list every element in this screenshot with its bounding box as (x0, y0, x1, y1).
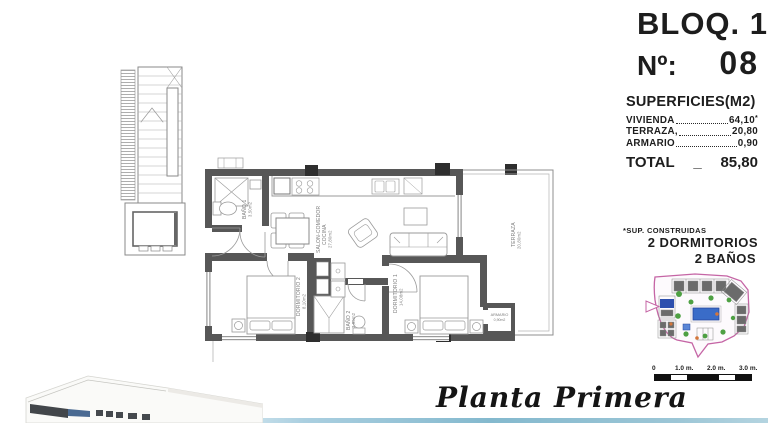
bathrooms-count: 2 BAÑOS (626, 251, 756, 266)
unit-number-row: Nº: 08 (637, 45, 759, 82)
armario-closet: ARMARIO 0,90m2 (483, 303, 515, 335)
row-name: ARMARIO (626, 138, 675, 149)
dormitorio2-furniture (232, 276, 295, 334)
banio2-area: 3,95m2 (351, 312, 356, 328)
scale-label-3: 3.0 m. (739, 365, 757, 372)
leader-dots (676, 146, 737, 147)
salon-area: 27,80m2 (328, 230, 333, 248)
unit-number-label: Nº: (637, 50, 677, 82)
total-label: TOTAL (626, 154, 675, 171)
floor-title: Planta Primera (436, 381, 670, 414)
building-render (18, 358, 263, 423)
row-value: 64,10 (729, 115, 755, 126)
dining-table (271, 213, 309, 248)
banio1-fixtures (213, 178, 261, 215)
row-note: * (755, 115, 758, 123)
small-pool (683, 324, 690, 330)
row-value: 0,90 (738, 138, 758, 149)
highlighted-unit (660, 299, 674, 308)
scale-label-0: 0 (652, 365, 656, 372)
scale-bar-segments (654, 374, 752, 381)
scale-label-2: 2.0 m. (707, 365, 725, 372)
table-row: VIVIENDA 64,10 * (626, 115, 758, 126)
surfaces-title: SUPERFICIES(M2) (626, 94, 758, 110)
total-value: 85,80 (720, 154, 758, 171)
unit-number-value: 08 (719, 45, 759, 82)
living-furniture (347, 208, 447, 256)
table-row: TERRAZA, 20,80 (626, 126, 758, 137)
banio1-area: 3,50m2 (248, 201, 253, 217)
dormitorio1-area: 14,08m2 (399, 288, 404, 306)
kitchen (218, 158, 455, 196)
table-row: ARMARIO 0,90 (626, 138, 758, 149)
row-value: 20,80 (732, 126, 758, 137)
total-row: TOTAL _ 85,80 (626, 154, 758, 171)
dormitorio2-area: 8,10m2 (302, 293, 307, 309)
surfaces-table: SUPERFICIES(M2) VIVIENDA 64,10 * TERRAZA… (626, 94, 758, 171)
block-title: BLOQ. 1 (637, 6, 759, 42)
site-plan-map (645, 272, 760, 365)
armario-area: 0,90m2 (494, 318, 506, 322)
bedrooms-count: 2 DORMITORIOS (626, 235, 758, 250)
pool (693, 308, 719, 320)
leader-dots (676, 123, 728, 124)
terraza-area: 20,80m2 (517, 231, 522, 249)
elevator (125, 203, 185, 255)
built-in-wardrobe (314, 258, 331, 296)
hatched-wall (121, 70, 135, 200)
constructed-footnote: *SUP. CONSTRUIDAS (623, 226, 706, 235)
row-name: VIVIENDA (626, 115, 675, 126)
row-name: TERRAZA, (626, 126, 678, 137)
dormitorio1-furniture (405, 276, 483, 334)
total-separator: _ (693, 154, 701, 171)
leader-dots (679, 135, 731, 136)
stair-core (121, 67, 185, 255)
stair-railing (167, 88, 178, 176)
banio2-door-gap (348, 279, 363, 284)
title-block: BLOQ. 1 Nº: 08 (637, 6, 759, 82)
scale-label-1: 1.0 m. (675, 365, 693, 372)
armario-label: ARMARIO (491, 313, 509, 317)
